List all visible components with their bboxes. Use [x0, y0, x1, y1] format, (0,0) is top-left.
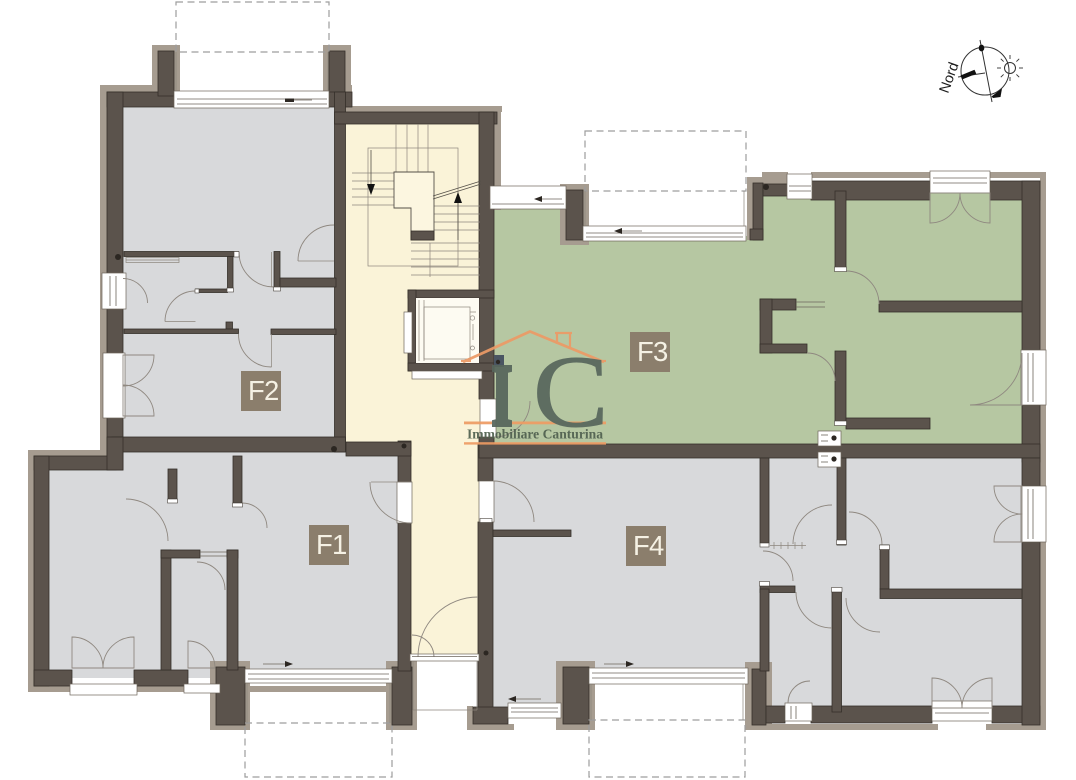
svg-text:F3: F3	[637, 336, 668, 367]
svg-text:Immobiliare Canturina: Immobiliare Canturina	[467, 428, 603, 443]
svg-text:F2: F2	[248, 375, 279, 406]
svg-text:F4: F4	[633, 530, 664, 561]
svg-text:F1: F1	[316, 529, 347, 560]
